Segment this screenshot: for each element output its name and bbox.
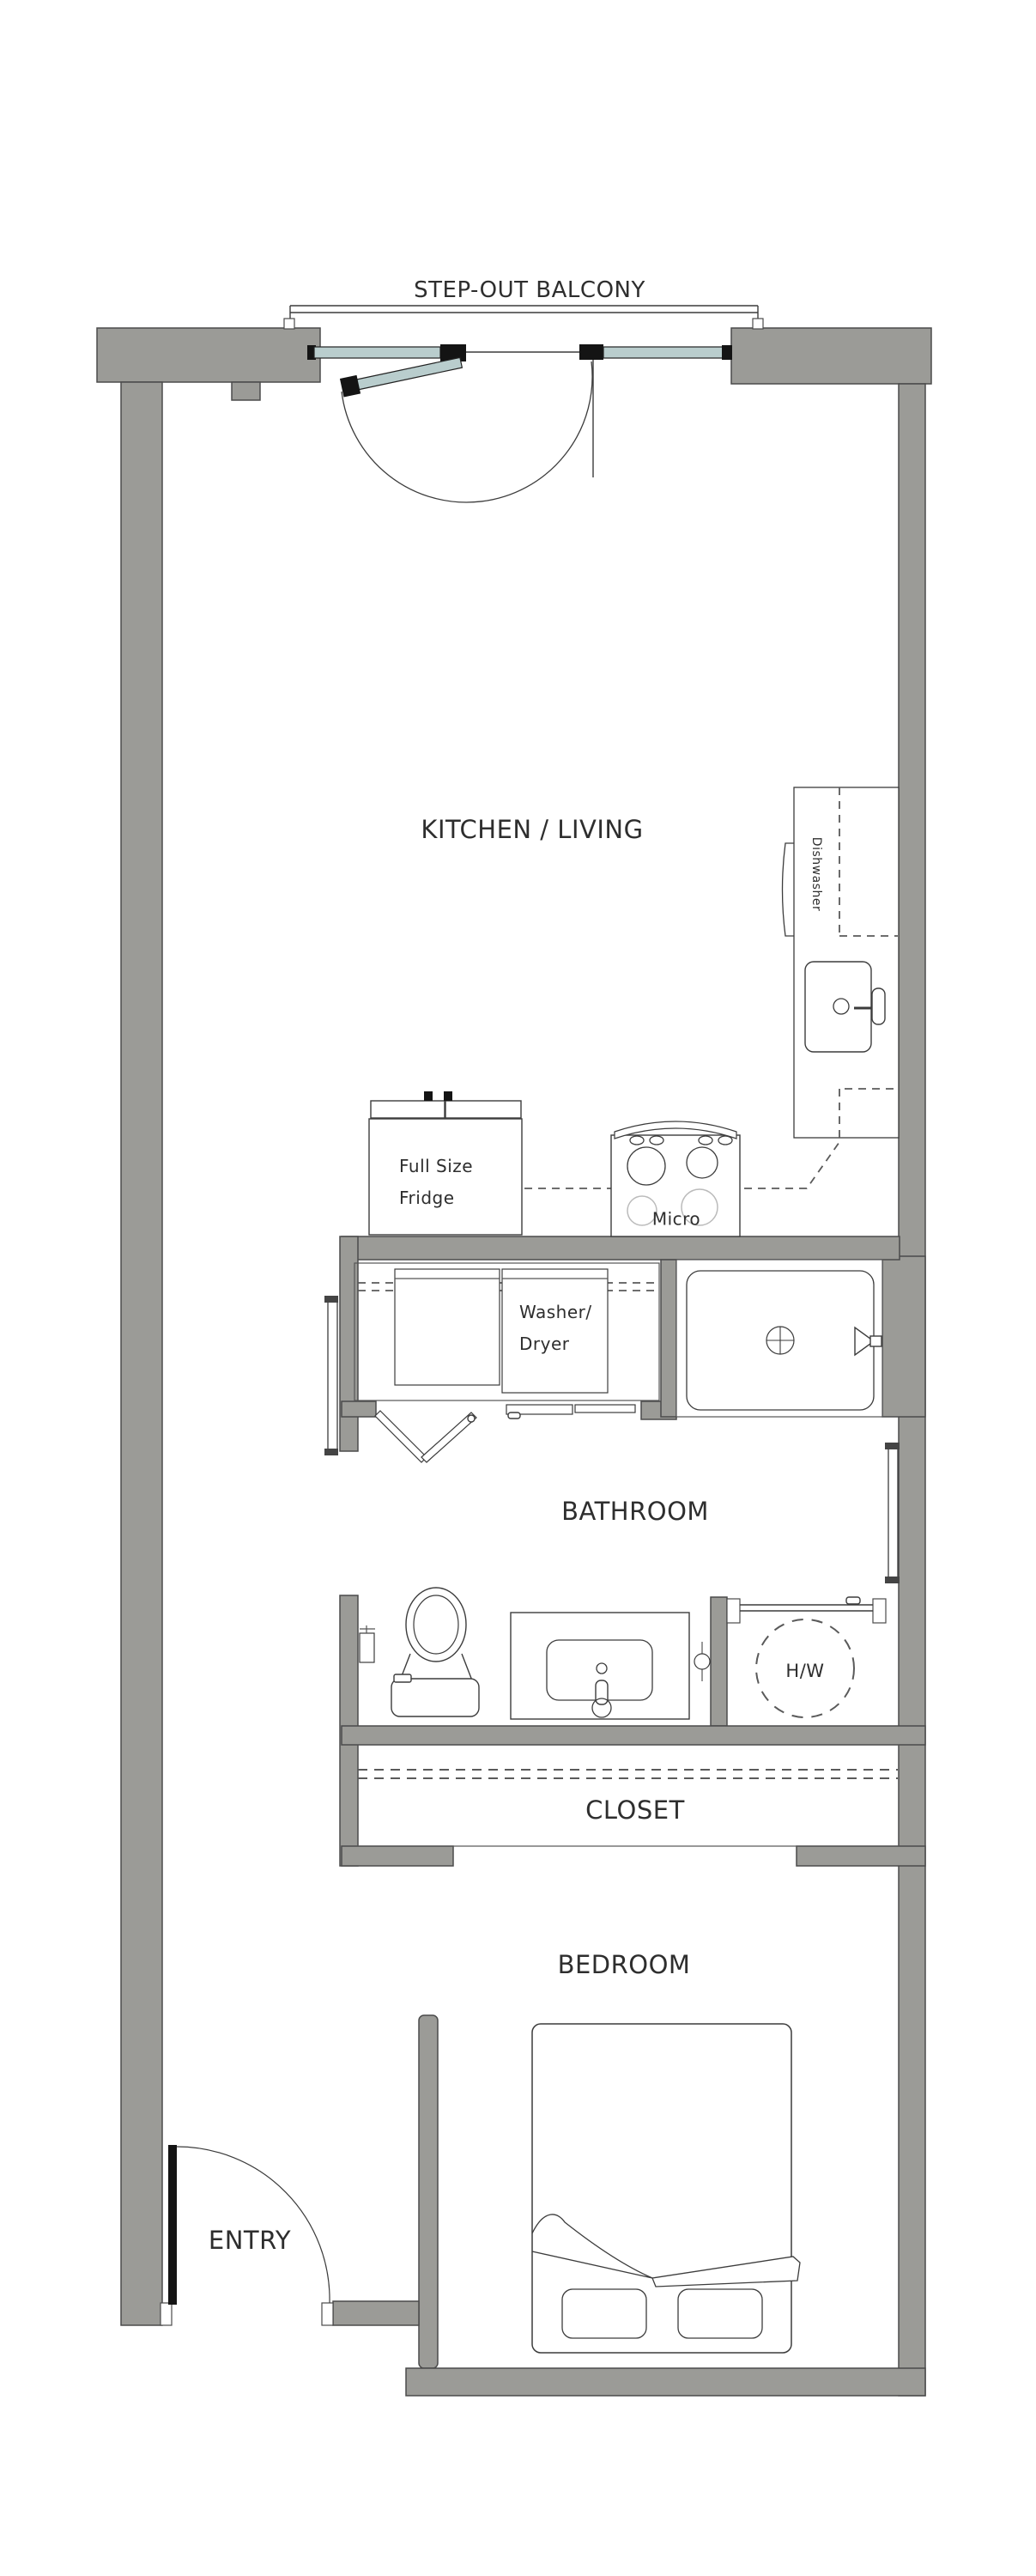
wall-closet-stub-right	[797, 1846, 925, 1866]
wall-bathroom-top	[342, 1236, 900, 1260]
flush-button	[394, 1674, 411, 1682]
laundry-closet	[354, 1263, 659, 1462]
micro-label: Micro	[652, 1204, 700, 1236]
wall-top-right	[731, 328, 931, 384]
laundry-sliding-door-right	[575, 1405, 635, 1413]
vanity-faucet	[596, 1680, 608, 1704]
hall-bathroom-door	[324, 1296, 338, 1455]
entry-door-arc	[177, 2147, 330, 2303]
sink-faucet	[872, 988, 885, 1024]
wall-hw-left	[711, 1597, 727, 1726]
floor-plan: STEP-OUT BALCONY KITCHEN / LIVING Dishwa…	[0, 0, 1036, 2576]
bed	[532, 2024, 800, 2353]
wall-bathroom-left-upper	[340, 1236, 358, 1451]
hw-door-jamb-right	[873, 1599, 886, 1623]
wall-top-left	[97, 328, 320, 382]
pillow-left	[562, 2289, 646, 2338]
door-handle	[508, 1413, 520, 1419]
bathroom-label: BATHROOM	[561, 1497, 709, 1526]
wall-top-left-step	[232, 382, 260, 400]
vanity-sink	[511, 1613, 689, 1719]
wall-bottom	[406, 2368, 925, 2396]
wall-shower-pilaster	[882, 1256, 925, 1417]
washer-dryer-label: Washer/Dryer	[519, 1297, 592, 1360]
hw-door-jamb-left	[727, 1599, 740, 1623]
laundry-unit-left	[395, 1269, 500, 1385]
wall-laundry-stub-left	[342, 1401, 376, 1417]
entry-door	[168, 2145, 330, 2305]
railing-post-left	[284, 319, 294, 329]
closet-label: CLOSET	[585, 1795, 685, 1825]
door-handle	[846, 1597, 860, 1604]
toilet-paper-holder	[360, 1625, 375, 1662]
bedroom-label: BEDROOM	[558, 1950, 691, 1979]
hw-sliding-door	[740, 1597, 873, 1611]
wall-bathroom-bottom	[342, 1726, 925, 1745]
fridge-door-right	[445, 1101, 521, 1118]
railing-post-right	[753, 319, 763, 329]
hw-label: H/W	[785, 1661, 824, 1681]
toilet-tank	[391, 1679, 479, 1716]
wall-entry-back	[333, 2301, 419, 2325]
bifold-door-left	[375, 1411, 427, 1462]
pillow-right	[678, 2289, 762, 2338]
dishwasher-label: Dishwasher	[809, 837, 823, 911]
shower	[676, 1260, 882, 1417]
glass-panel-left	[314, 347, 440, 358]
fridge-label: Full SizeFridge	[399, 1151, 473, 1214]
closet-rod-dashed	[358, 1770, 898, 1778]
wall-left	[121, 382, 162, 2325]
glass-panel-right	[603, 347, 723, 358]
kitchen-living-label: KITCHEN / LIVING	[421, 815, 643, 844]
water-valve	[694, 1642, 710, 1681]
bathroom-door	[885, 1443, 900, 1583]
entry-door-jamb-right	[322, 2303, 333, 2325]
toilet	[391, 1588, 479, 1716]
entry-door-leaf	[168, 2145, 177, 2305]
entry-label: ENTRY	[209, 2226, 291, 2255]
floor-plan-drawing	[0, 0, 1036, 2576]
dishwasher-handle	[783, 843, 795, 936]
wall-shower-divider	[661, 1260, 676, 1417]
balcony-label: STEP-OUT BALCONY	[414, 277, 645, 303]
balcony-railing	[284, 306, 763, 329]
entry-door-jamb-left	[161, 2303, 172, 2325]
fridge-door-left	[371, 1101, 445, 1118]
door-hinge-right	[579, 344, 603, 360]
wall-closet-stub-left	[342, 1846, 453, 1866]
wall-bedroom-left	[419, 2015, 438, 2368]
sliding-glass-door	[307, 344, 732, 502]
